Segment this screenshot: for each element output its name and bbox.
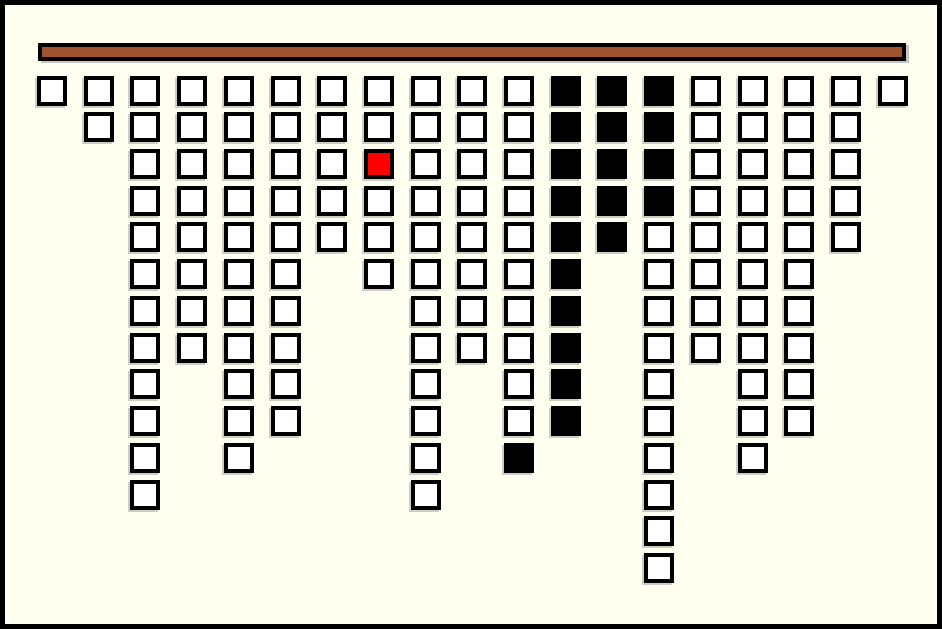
white-cell[interactable] <box>177 186 207 216</box>
white-cell[interactable] <box>130 259 160 289</box>
white-cell[interactable] <box>644 259 674 289</box>
wooden-bar <box>38 43 906 61</box>
black-cell[interactable] <box>551 149 581 179</box>
white-cell[interactable] <box>411 333 441 363</box>
white-cell[interactable] <box>644 553 674 583</box>
game-board <box>0 0 942 629</box>
white-cell[interactable] <box>784 333 814 363</box>
white-cell[interactable] <box>691 186 721 216</box>
white-cell[interactable] <box>130 296 160 326</box>
white-cell[interactable] <box>738 149 768 179</box>
black-cell[interactable] <box>551 296 581 326</box>
white-cell[interactable] <box>317 76 347 106</box>
white-cell[interactable] <box>224 259 254 289</box>
white-cell[interactable] <box>738 443 768 473</box>
white-cell[interactable] <box>411 443 441 473</box>
white-cell[interactable] <box>130 112 160 142</box>
white-cell[interactable] <box>411 406 441 436</box>
white-cell[interactable] <box>504 112 534 142</box>
white-cell[interactable] <box>738 259 768 289</box>
white-cell[interactable] <box>271 76 301 106</box>
white-cell[interactable] <box>271 406 301 436</box>
white-cell[interactable] <box>177 333 207 363</box>
white-cell[interactable] <box>644 333 674 363</box>
white-cell[interactable] <box>130 333 160 363</box>
white-cell[interactable] <box>457 112 487 142</box>
white-cell[interactable] <box>457 296 487 326</box>
white-cell[interactable] <box>130 222 160 252</box>
white-cell[interactable] <box>644 480 674 510</box>
white-cell[interactable] <box>271 259 301 289</box>
white-cell[interactable] <box>738 186 768 216</box>
white-cell[interactable] <box>738 406 768 436</box>
white-cell[interactable] <box>644 369 674 399</box>
white-cell[interactable] <box>784 369 814 399</box>
black-cell[interactable] <box>597 149 627 179</box>
white-cell[interactable] <box>644 443 674 473</box>
red-cell[interactable] <box>364 149 394 179</box>
white-cell[interactable] <box>317 222 347 252</box>
white-cell[interactable] <box>84 76 114 106</box>
white-cell[interactable] <box>271 186 301 216</box>
white-cell[interactable] <box>130 406 160 436</box>
white-cell[interactable] <box>364 222 394 252</box>
black-cell[interactable] <box>551 369 581 399</box>
white-cell[interactable] <box>411 480 441 510</box>
white-cell[interactable] <box>411 186 441 216</box>
white-cell[interactable] <box>317 149 347 179</box>
white-cell[interactable] <box>457 76 487 106</box>
white-cell[interactable] <box>691 149 721 179</box>
white-cell[interactable] <box>177 222 207 252</box>
black-cell[interactable] <box>644 112 674 142</box>
white-cell[interactable] <box>317 186 347 216</box>
white-cell[interactable] <box>130 369 160 399</box>
black-cell[interactable] <box>551 333 581 363</box>
white-cell[interactable] <box>224 296 254 326</box>
white-cell[interactable] <box>784 112 814 142</box>
white-cell[interactable] <box>271 369 301 399</box>
white-cell[interactable] <box>644 222 674 252</box>
white-cell[interactable] <box>457 259 487 289</box>
white-cell[interactable] <box>784 406 814 436</box>
white-cell[interactable] <box>784 222 814 252</box>
white-cell[interactable] <box>271 222 301 252</box>
white-cell[interactable] <box>130 443 160 473</box>
white-cell[interactable] <box>691 296 721 326</box>
white-cell[interactable] <box>130 186 160 216</box>
white-cell[interactable] <box>738 76 768 106</box>
white-cell[interactable] <box>411 296 441 326</box>
white-cell[interactable] <box>691 259 721 289</box>
white-cell[interactable] <box>784 149 814 179</box>
white-cell[interactable] <box>177 296 207 326</box>
white-cell[interactable] <box>224 112 254 142</box>
white-cell[interactable] <box>878 76 908 106</box>
white-cell[interactable] <box>411 369 441 399</box>
white-cell[interactable] <box>504 186 534 216</box>
black-cell[interactable] <box>597 76 627 106</box>
black-cell[interactable] <box>644 76 674 106</box>
white-cell[interactable] <box>457 333 487 363</box>
white-cell[interactable] <box>224 222 254 252</box>
white-cell[interactable] <box>831 149 861 179</box>
white-cell[interactable] <box>644 296 674 326</box>
white-cell[interactable] <box>738 112 768 142</box>
white-cell[interactable] <box>457 186 487 216</box>
black-cell[interactable] <box>551 222 581 252</box>
black-cell[interactable] <box>551 406 581 436</box>
black-cell[interactable] <box>551 76 581 106</box>
white-cell[interactable] <box>738 296 768 326</box>
black-cell[interactable] <box>597 112 627 142</box>
white-cell[interactable] <box>224 149 254 179</box>
white-cell[interactable] <box>130 480 160 510</box>
white-cell[interactable] <box>504 222 534 252</box>
white-cell[interactable] <box>691 76 721 106</box>
white-cell[interactable] <box>831 112 861 142</box>
white-cell[interactable] <box>504 149 534 179</box>
white-cell[interactable] <box>831 222 861 252</box>
black-cell[interactable] <box>551 259 581 289</box>
white-cell[interactable] <box>364 186 394 216</box>
white-cell[interactable] <box>84 112 114 142</box>
black-cell[interactable] <box>644 149 674 179</box>
black-cell[interactable] <box>504 443 534 473</box>
white-cell[interactable] <box>130 76 160 106</box>
white-cell[interactable] <box>504 76 534 106</box>
white-cell[interactable] <box>224 76 254 106</box>
white-cell[interactable] <box>224 369 254 399</box>
black-cell[interactable] <box>644 186 674 216</box>
white-cell[interactable] <box>271 333 301 363</box>
white-cell[interactable] <box>738 369 768 399</box>
black-cell[interactable] <box>551 112 581 142</box>
white-cell[interactable] <box>37 76 67 106</box>
white-cell[interactable] <box>411 259 441 289</box>
white-cell[interactable] <box>177 259 207 289</box>
white-cell[interactable] <box>831 186 861 216</box>
white-cell[interactable] <box>271 296 301 326</box>
white-cell[interactable] <box>784 296 814 326</box>
white-cell[interactable] <box>738 333 768 363</box>
white-cell[interactable] <box>691 333 721 363</box>
black-cell[interactable] <box>597 222 627 252</box>
white-cell[interactable] <box>784 76 814 106</box>
white-cell[interactable] <box>504 259 534 289</box>
white-cell[interactable] <box>411 149 441 179</box>
white-cell[interactable] <box>177 149 207 179</box>
white-cell[interactable] <box>831 76 861 106</box>
white-cell[interactable] <box>457 222 487 252</box>
white-cell[interactable] <box>784 259 814 289</box>
white-cell[interactable] <box>224 443 254 473</box>
white-cell[interactable] <box>691 112 721 142</box>
white-cell[interactable] <box>271 112 301 142</box>
white-cell[interactable] <box>364 259 394 289</box>
white-cell[interactable] <box>457 149 487 179</box>
white-cell[interactable] <box>224 186 254 216</box>
white-cell[interactable] <box>691 222 721 252</box>
white-cell[interactable] <box>177 112 207 142</box>
white-cell[interactable] <box>784 186 814 216</box>
white-cell[interactable] <box>224 333 254 363</box>
white-cell[interactable] <box>504 296 534 326</box>
white-cell[interactable] <box>644 406 674 436</box>
black-cell[interactable] <box>551 186 581 216</box>
white-cell[interactable] <box>738 222 768 252</box>
white-cell[interactable] <box>411 112 441 142</box>
white-cell[interactable] <box>411 222 441 252</box>
white-cell[interactable] <box>317 112 347 142</box>
white-cell[interactable] <box>364 76 394 106</box>
white-cell[interactable] <box>644 516 674 546</box>
white-cell[interactable] <box>504 369 534 399</box>
white-cell[interactable] <box>224 406 254 436</box>
white-cell[interactable] <box>504 406 534 436</box>
white-cell[interactable] <box>411 76 441 106</box>
white-cell[interactable] <box>177 76 207 106</box>
black-cell[interactable] <box>597 186 627 216</box>
white-cell[interactable] <box>130 149 160 179</box>
white-cell[interactable] <box>504 333 534 363</box>
white-cell[interactable] <box>364 112 394 142</box>
white-cell[interactable] <box>271 149 301 179</box>
